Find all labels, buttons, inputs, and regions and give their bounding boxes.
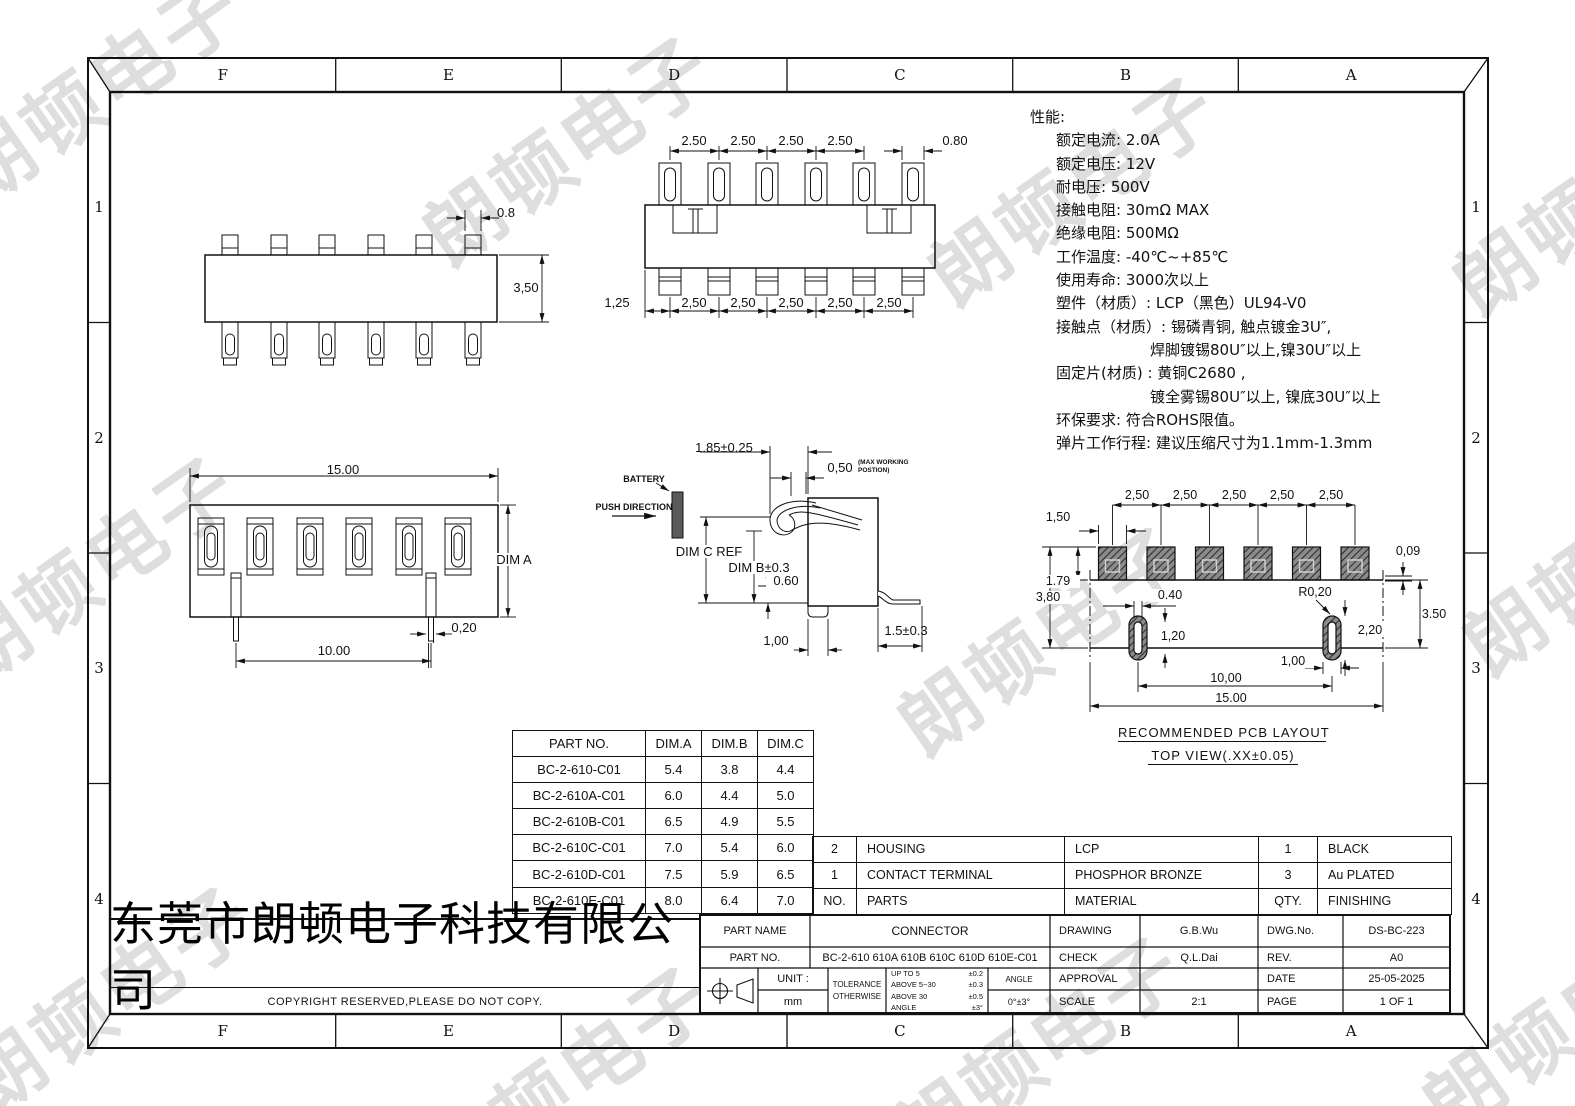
table-cell: Au PLATED xyxy=(1318,862,1452,888)
spec-line: 性能: xyxy=(1030,106,1470,129)
dim-label: 0.40 xyxy=(1148,589,1192,602)
tolerance-row: ABOVE 30±0.5 xyxy=(886,992,988,1001)
table-cell: 2 xyxy=(813,837,857,863)
spec-line: 耐电压: 500V xyxy=(1056,176,1470,199)
table-header-cell: DIM.A xyxy=(646,731,702,757)
projection-symbol xyxy=(707,978,753,1004)
top-view xyxy=(205,210,549,365)
dim-label: 2,50 xyxy=(1117,489,1157,502)
dim-label: 1.5±0.3 xyxy=(876,624,936,637)
drawing-label: DRAWING xyxy=(1050,915,1149,947)
dim-label: 2,50 xyxy=(771,296,811,309)
dim-label: 0,20 xyxy=(444,621,484,634)
dim-label: 3,50 xyxy=(505,281,547,294)
zone-col-b: B xyxy=(1013,58,1239,92)
push-direction-label: PUSH DIRECTION xyxy=(594,503,674,512)
zone-row-3-right: 3 xyxy=(1464,553,1488,784)
table-header-cell: DIM.C xyxy=(758,731,814,757)
dim-note: (MAX WORKING POSTION) xyxy=(858,459,920,475)
dim-label: 3.50 xyxy=(1413,608,1455,621)
dim-label: DIM A xyxy=(487,553,541,566)
drawing-value: G.B.Wu xyxy=(1140,915,1258,947)
dim-label: 10.00 xyxy=(310,644,358,657)
bom-table-body: 2HOUSINGLCP1BLACK1CONTACT TERMINALPHOSPH… xyxy=(813,837,1452,915)
pcb-pads xyxy=(1099,547,1370,580)
pcb-layout-subtitle: TOP VIEW(.XX±0.05) xyxy=(1148,749,1298,765)
dim-label: 2,50 xyxy=(1165,489,1205,502)
part-no-label: PART NO. xyxy=(700,947,810,968)
spec-line: 固定片(材质) : 黄铜C2680 , xyxy=(1056,362,1470,385)
table-cell: 6.5 xyxy=(646,809,702,835)
table-header-cell: PART NO. xyxy=(513,731,646,757)
table-row: BC-2-610B-C016.54.95.5 xyxy=(513,809,814,835)
company-block: 东莞市朗顿电子科技有限公司 COPYRIGHT RESERVED,PLEASE … xyxy=(110,918,700,1016)
rev-label: REV. xyxy=(1258,947,1352,968)
dim-label: 0,09 xyxy=(1388,545,1428,558)
table-row: NO.PARTSMATERIALQTY.FINISHING xyxy=(813,888,1452,914)
zone-row-4-right: 4 xyxy=(1464,784,1488,1015)
dwg-no-value: DS-BC-223 xyxy=(1343,915,1450,947)
dim-label: 0,50 xyxy=(822,461,858,474)
dim-label: 10,00 xyxy=(1200,672,1252,685)
part-no-value: BC-2-610 610A 610B 610C 610D 610E-C01 xyxy=(810,947,1050,968)
table-cell: HOUSING xyxy=(857,837,1065,863)
spec-line: 塑件（材质）: LCP（黑色）UL94-V0 xyxy=(1056,292,1470,315)
dim-label: 0.80 xyxy=(933,134,977,147)
dim-label: 1.85±0.25 xyxy=(688,441,760,454)
table-cell: 7.0 xyxy=(646,835,702,861)
tolerance-row: UP TO 5±0.2 xyxy=(886,969,988,978)
dim-label: 1,20 xyxy=(1152,630,1194,643)
angle-label: ANGLE xyxy=(988,968,1050,990)
page-label: PAGE xyxy=(1258,990,1352,1013)
dim-label: R0,20 xyxy=(1290,586,1340,599)
tol-range: UP TO 5 xyxy=(891,969,920,978)
spec-line: 工作温度: -40℃~+85℃ xyxy=(1056,246,1470,269)
table-cell: 7.5 xyxy=(646,861,702,887)
table-cell: 6.5 xyxy=(758,861,814,887)
spec-line: 镀全雾锡80U″以上, 镍底30U″以上 xyxy=(1150,386,1470,409)
zone-col-c-bottom: C xyxy=(787,1014,1013,1048)
pcb-layout-title: RECOMMENDED PCB LAYOUT xyxy=(1118,726,1326,742)
dim-label: 2,50 xyxy=(820,296,860,309)
table-cell: 3 xyxy=(1259,862,1318,888)
zone-row-2: 2 xyxy=(88,323,110,554)
table-cell: 5.4 xyxy=(646,757,702,783)
tolerance-values: UP TO 5±0.2 ABOVE 5~30±0.3 ABOVE 30±0.5 … xyxy=(886,968,988,1013)
check-value: Q.L.Dai xyxy=(1140,947,1258,968)
part-table-body: PART NO.DIM.ADIM.BDIM.CBC-2-610-C015.43.… xyxy=(513,731,814,914)
table-cell: QTY. xyxy=(1259,888,1318,914)
spec-notes: 性能: 额定电流: 2.0A 额定电压: 12V 耐电压: 500V 接触电阻:… xyxy=(1030,106,1470,455)
table-cell: BC-2-610D-C01 xyxy=(513,861,646,887)
table-row: BC-2-610D-C017.55.96.5 xyxy=(513,861,814,887)
battery-label: BATTERY xyxy=(618,475,670,484)
dim-label: 2,50 xyxy=(723,296,763,309)
table-cell: 6.0 xyxy=(646,783,702,809)
table-cell: PHOSPHOR BRONZE xyxy=(1065,862,1259,888)
table-row: 1CONTACT TERMINALPHOSPHOR BRONZE3Au PLAT… xyxy=(813,862,1452,888)
table-cell: 4.9 xyxy=(702,809,758,835)
dim-label: 2.50 xyxy=(674,134,714,147)
table-cell: 4.4 xyxy=(758,757,814,783)
table-cell: LCP xyxy=(1065,837,1259,863)
spec-line: 接触点（材质）: 锡磷青铜, 触点镀金3U″, xyxy=(1056,316,1470,339)
table-row: BC-2-610-C015.43.84.4 xyxy=(513,757,814,783)
table-cell: FINISHING xyxy=(1318,888,1452,914)
dim-label: 2.50 xyxy=(771,134,811,147)
table-cell: BC-2-610A-C01 xyxy=(513,783,646,809)
dim-label: 2,20 xyxy=(1348,624,1392,637)
spec-line: 焊脚镀锡80U″以上,镍30U″以上 xyxy=(1150,339,1470,362)
zone-col-d: D xyxy=(561,58,787,92)
dwg-no-label: DWG.No. xyxy=(1258,915,1352,947)
table-cell: 5.9 xyxy=(702,861,758,887)
spec-line: 额定电流: 2.0A xyxy=(1056,129,1470,152)
table-row: 2HOUSINGLCP1BLACK xyxy=(813,837,1452,863)
table-cell: BC-2-610-C01 xyxy=(513,757,646,783)
scale-value: 2:1 xyxy=(1140,990,1258,1013)
table-row: BC-2-610C-C017.05.46.0 xyxy=(513,835,814,861)
tolerance-label: TOLERANCE OTHERWISE xyxy=(828,968,886,1013)
spec-line: 使用寿命: 3000次以上 xyxy=(1056,269,1470,292)
page-value: 1 OF 1 xyxy=(1343,990,1450,1013)
dim-label: 0.8 xyxy=(488,206,524,219)
scale-label: SCALE xyxy=(1050,990,1149,1013)
table-cell: BLACK xyxy=(1318,837,1452,863)
zone-col-c: C xyxy=(787,58,1013,92)
dim-label: 2,50 xyxy=(869,296,909,309)
battery-bar xyxy=(672,492,683,538)
dim-label: 1,25 xyxy=(597,296,637,309)
dim-label: 15.00 xyxy=(318,463,368,476)
table-cell: 4.4 xyxy=(702,783,758,809)
dim-label: 2,50 xyxy=(1214,489,1254,502)
table-cell: CONTACT TERMINAL xyxy=(857,862,1065,888)
table-cell: PARTS xyxy=(857,888,1065,914)
part-name-value: CONNECTOR xyxy=(810,915,1050,947)
tol-value: ±0.3 xyxy=(968,980,983,989)
tol-value: ±0.5 xyxy=(968,992,983,1001)
table-cell: 5.0 xyxy=(758,783,814,809)
table-cell: 7.0 xyxy=(758,887,814,913)
dim-label: 15.00 xyxy=(1205,692,1257,705)
date-label: DATE xyxy=(1258,968,1352,990)
drawing-sheet: 朗顿电子 朗顿电子 朗顿电子 朗顿电子 朗顿电子 朗顿电子 朗顿电子 朗顿电子 … xyxy=(0,0,1575,1106)
approval-value xyxy=(1140,968,1258,990)
table-cell: 6.4 xyxy=(702,887,758,913)
table-cell: BC-2-610C-C01 xyxy=(513,835,646,861)
table-row: BC-2-610A-C016.04.45.0 xyxy=(513,783,814,809)
rev-value: A0 xyxy=(1343,947,1450,968)
zone-row-4: 4 xyxy=(88,784,110,1015)
table-cell: 5.4 xyxy=(702,835,758,861)
tol-value: ±0.2 xyxy=(968,969,983,978)
zone-col-a-bottom: A xyxy=(1238,1014,1464,1048)
front-view xyxy=(190,468,516,668)
table-cell: BC-2-610B-C01 xyxy=(513,809,646,835)
tolerance-label-line1: TOLERANCE xyxy=(833,979,882,991)
zone-col-e: E xyxy=(336,58,562,92)
tol-range: ANGLE xyxy=(891,1003,916,1012)
spec-line: 环保要求: 符合ROHS限值。 xyxy=(1056,409,1470,432)
bottom-view xyxy=(645,146,942,318)
table-cell: 5.5 xyxy=(758,809,814,835)
dim-label: 0.60 xyxy=(766,574,806,587)
table-cell: NO. xyxy=(813,888,857,914)
date-value: 25-05-2025 xyxy=(1343,968,1450,990)
table-cell: 6.0 xyxy=(758,835,814,861)
tolerance-row: ANGLE±3° xyxy=(886,1003,988,1012)
part-table: PART NO.DIM.ADIM.BDIM.CBC-2-610-C015.43.… xyxy=(512,730,814,914)
table-cell: 1 xyxy=(1259,837,1318,863)
dim-label: 2,50 xyxy=(1311,489,1351,502)
unit-value: mm xyxy=(758,990,828,1013)
dim-label: 2,50 xyxy=(1262,489,1302,502)
tol-range: ABOVE 5~30 xyxy=(891,980,936,989)
tol-range: ABOVE 30 xyxy=(891,992,927,1001)
tolerance-label-line2: OTHERWISE xyxy=(833,991,881,1003)
dim-label: 1,50 xyxy=(1040,511,1076,524)
table-cell: 3.8 xyxy=(702,757,758,783)
table-header-cell: DIM.B xyxy=(702,731,758,757)
zone-col-a: A xyxy=(1238,58,1464,92)
zone-col-b-bottom: B xyxy=(1013,1014,1239,1048)
dim-label: 1.79 xyxy=(1036,575,1080,588)
unit-label: UNIT : xyxy=(758,968,828,990)
part-name-label: PART NAME xyxy=(700,915,810,947)
table-cell: 1 xyxy=(813,862,857,888)
angle-value: 0°±3° xyxy=(988,990,1050,1013)
dim-label: 1,00 xyxy=(758,634,794,647)
dim-label: 2,50 xyxy=(674,296,714,309)
bom-table: 2HOUSINGLCP1BLACK1CONTACT TERMINALPHOSPH… xyxy=(812,836,1452,915)
dim-label: 3,80 xyxy=(1026,591,1070,604)
check-label: CHECK xyxy=(1050,947,1149,968)
table-cell: MATERIAL xyxy=(1065,888,1259,914)
zone-row-1: 1 xyxy=(88,92,110,323)
zone-col-f: F xyxy=(110,58,336,92)
table-header-row: PART NO.DIM.ADIM.BDIM.C xyxy=(513,731,814,757)
company-name: 东莞市朗顿电子科技有限公司 xyxy=(110,920,700,988)
dim-label: DIM C REF xyxy=(666,545,752,558)
tolerance-row: ABOVE 5~30±0.3 xyxy=(886,980,988,989)
spec-line: 弹片工作行程: 建议压缩尺寸为1.1mm-1.3mm xyxy=(1056,432,1470,455)
dim-label: 2.50 xyxy=(820,134,860,147)
zone-row-3: 3 xyxy=(88,553,110,784)
spec-line: 额定电压: 12V xyxy=(1056,153,1470,176)
tol-value: ±3° xyxy=(972,1003,983,1012)
dim-label: 1,00 xyxy=(1272,655,1314,668)
dim-label: 2.50 xyxy=(723,134,763,147)
spec-line: 绝缘电阻: 500MΩ xyxy=(1056,222,1470,245)
spec-line: 接触电阻: 30mΩ MAX xyxy=(1056,199,1470,222)
approval-label: APPROVAL xyxy=(1050,968,1149,990)
